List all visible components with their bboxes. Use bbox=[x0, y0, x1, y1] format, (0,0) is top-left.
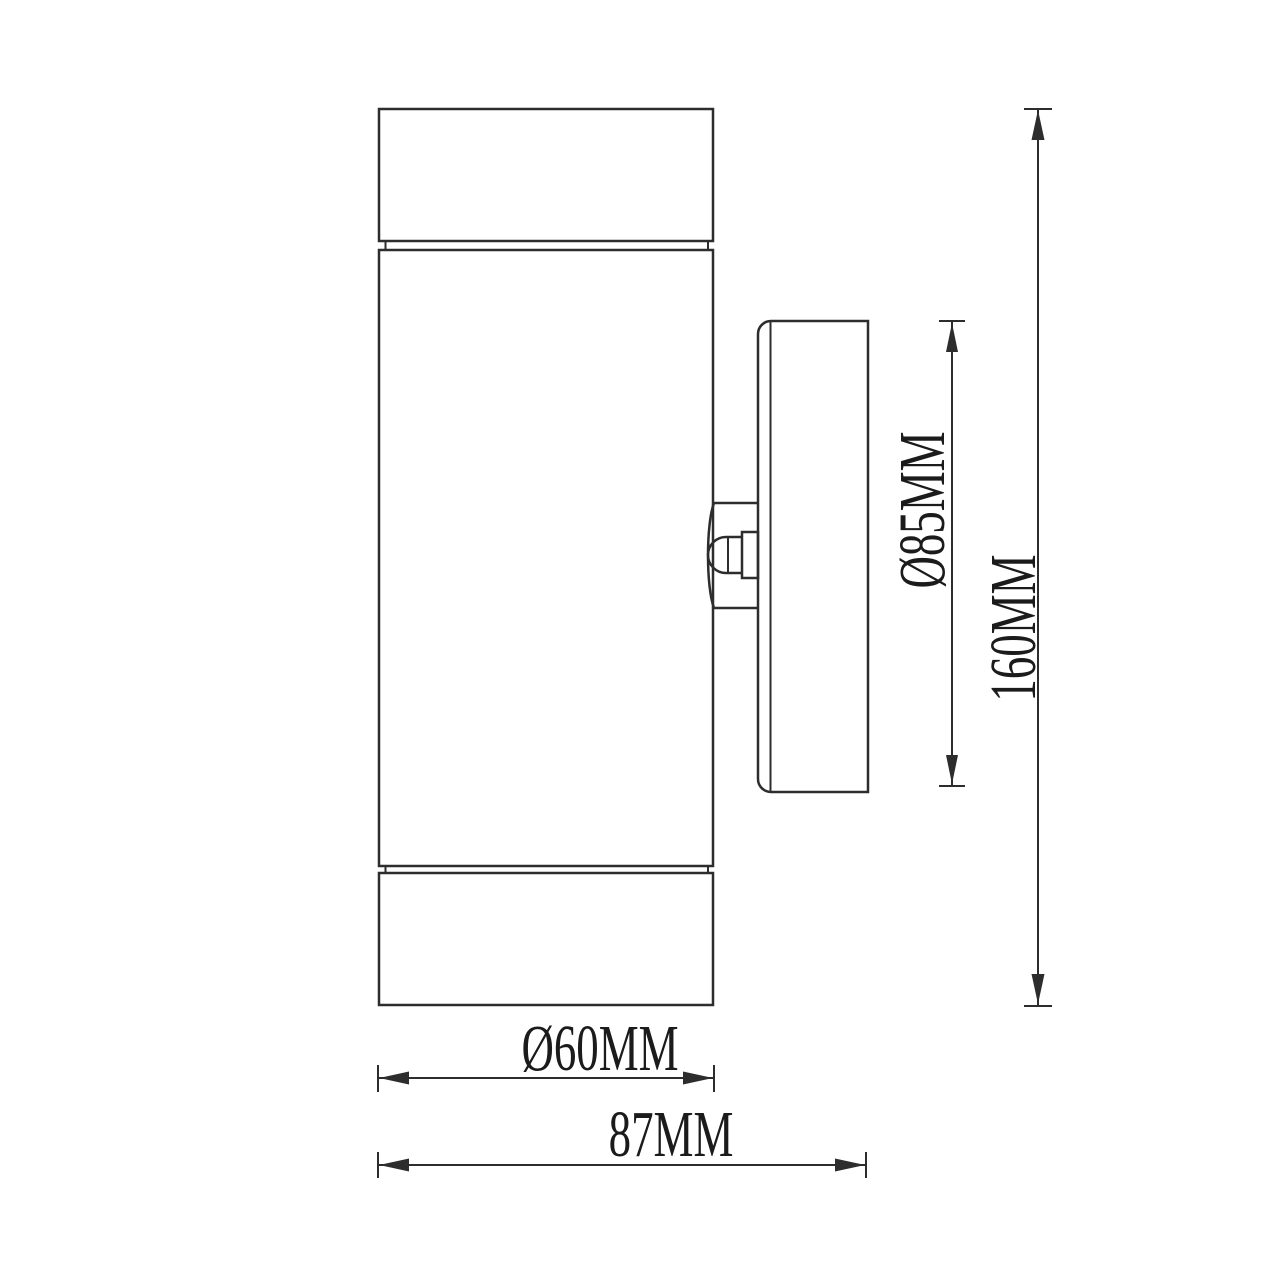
cylinder-body bbox=[379, 250, 713, 866]
dim-arrow-height-down bbox=[1032, 974, 1045, 1004]
linework-svg bbox=[0, 0, 1280, 1280]
dim-arrow-cyl-left bbox=[379, 1072, 409, 1085]
dim-label-overall-height: 160MM bbox=[981, 554, 1047, 701]
dim-arrow-plate-down bbox=[946, 755, 958, 784]
dim-arrow-depth-left bbox=[379, 1159, 409, 1172]
dim-label-cylinder-diameter: Ø60MM bbox=[521, 1016, 678, 1082]
cylinder-bottom-cap bbox=[379, 873, 713, 1005]
adjustment-knob-flange bbox=[742, 532, 758, 578]
dim-arrow-plate-up bbox=[946, 323, 958, 352]
drawing-canvas: Ø60MM 87MM Ø85MM 160MM bbox=[0, 0, 1280, 1280]
wall-plate-outline bbox=[758, 321, 868, 792]
dim-arrow-height-up bbox=[1032, 110, 1045, 140]
dim-label-overall-depth: 87MM bbox=[609, 1102, 734, 1168]
cylinder-top-cap bbox=[379, 109, 713, 241]
dim-arrow-cyl-right bbox=[683, 1072, 713, 1085]
dim-arrow-depth-right bbox=[835, 1159, 865, 1172]
dim-label-wall-plate-diameter: Ø85MM bbox=[890, 431, 956, 588]
